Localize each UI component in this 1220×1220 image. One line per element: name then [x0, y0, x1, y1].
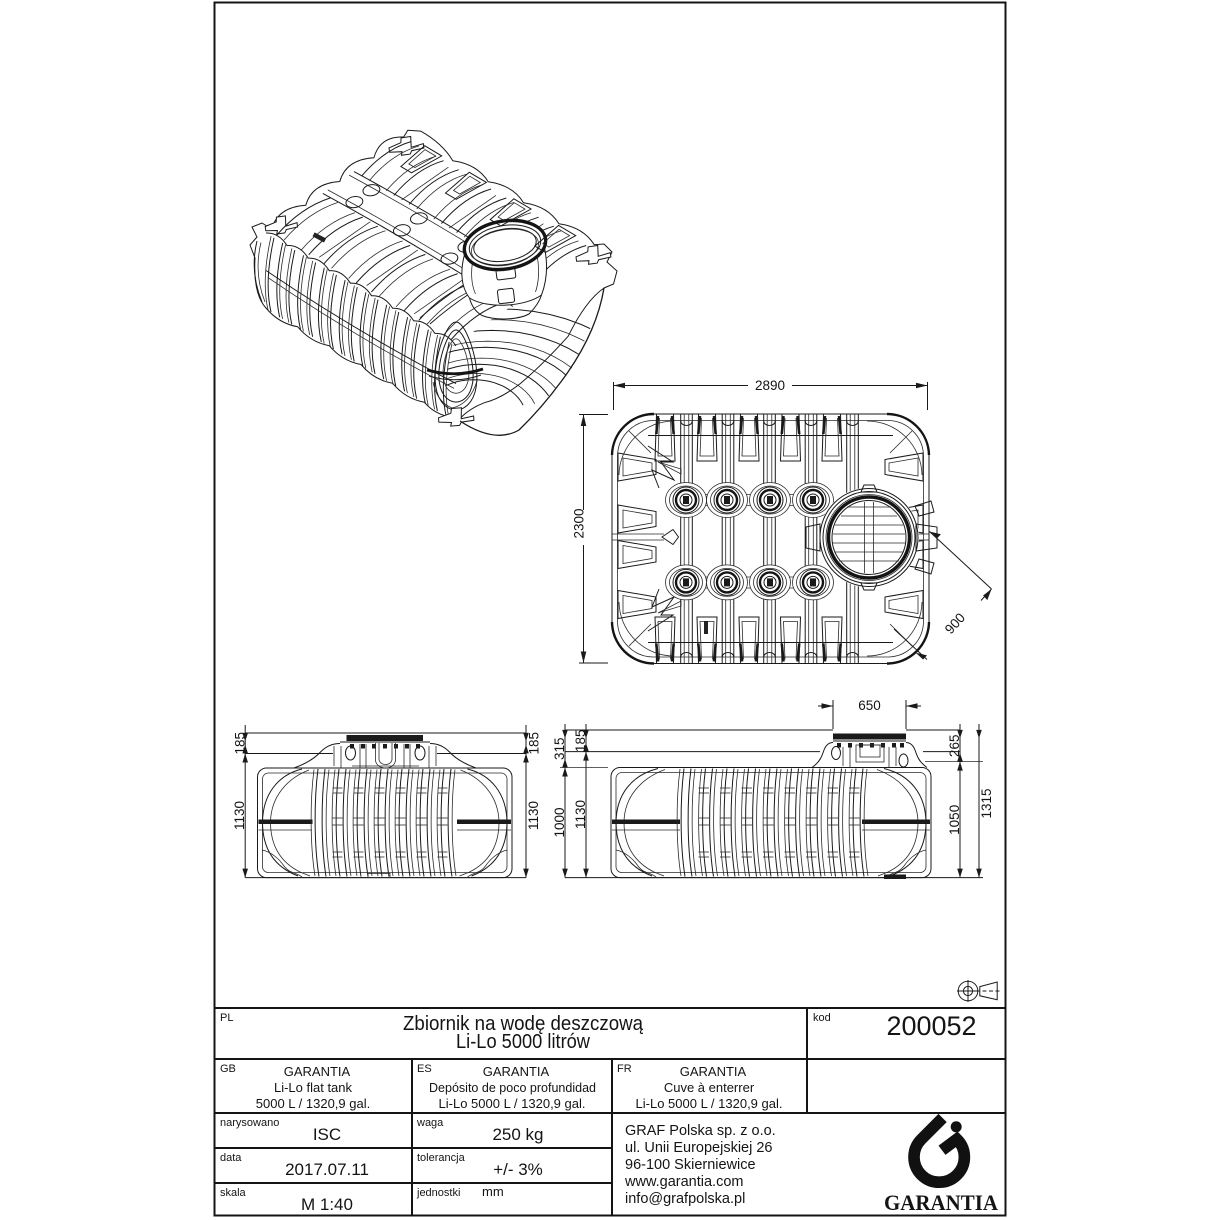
svg-text:185: 185	[526, 732, 541, 755]
svg-text:M 1:40: M 1:40	[301, 1195, 353, 1214]
svg-text:info@grafpolska.pl: info@grafpolska.pl	[625, 1191, 745, 1207]
svg-text:185: 185	[573, 730, 588, 753]
svg-text:Li-Lo 5000 litrów: Li-Lo 5000 litrów	[456, 1030, 590, 1053]
svg-text:GARANTIA: GARANTIA	[284, 1064, 351, 1079]
svg-text:Li-Lo 5000 L / 1320,9 gal.: Li-Lo 5000 L / 1320,9 gal.	[636, 1096, 783, 1111]
svg-text:mm: mm	[482, 1184, 504, 1199]
svg-text:GRAF Polska sp. z o.o.: GRAF Polska sp. z o.o.	[625, 1123, 776, 1139]
svg-text:265: 265	[947, 735, 962, 758]
svg-text:250 kg: 250 kg	[492, 1125, 543, 1144]
svg-text:1130: 1130	[573, 800, 588, 829]
svg-text:data: data	[220, 1152, 242, 1164]
svg-text:waga: waga	[416, 1117, 444, 1129]
svg-text:Li-Lo flat tank: Li-Lo flat tank	[274, 1080, 353, 1095]
svg-text:kod: kod	[813, 1012, 831, 1024]
svg-text:jednostki: jednostki	[416, 1187, 460, 1199]
svg-text:ul. Unii Europejskiej 26: ul. Unii Europejskiej 26	[625, 1140, 773, 1156]
svg-text:5000 L / 1320,9 gal.: 5000 L / 1320,9 gal.	[256, 1096, 370, 1111]
svg-text:tolerancja: tolerancja	[417, 1152, 466, 1164]
svg-text:GARANTIA: GARANTIA	[483, 1064, 550, 1079]
svg-text:1000: 1000	[552, 807, 567, 837]
svg-text:1130: 1130	[232, 801, 247, 830]
svg-text:+/- 3%: +/- 3%	[493, 1160, 543, 1179]
svg-text:GB: GB	[220, 1063, 236, 1075]
svg-text:Li-Lo 5000 L / 1320,9 gal.: Li-Lo 5000 L / 1320,9 gal.	[439, 1096, 586, 1111]
svg-text:96-100 Skierniewice: 96-100 Skierniewice	[625, 1157, 756, 1173]
svg-text:315: 315	[552, 737, 567, 760]
svg-text:1130: 1130	[526, 801, 541, 830]
svg-text:1315: 1315	[979, 788, 994, 818]
svg-text:2300: 2300	[572, 508, 587, 538]
svg-text:1050: 1050	[947, 805, 962, 835]
svg-text:185: 185	[232, 732, 247, 755]
svg-text:GARANTIA: GARANTIA	[680, 1064, 747, 1079]
svg-text:skala: skala	[220, 1187, 247, 1199]
svg-text:2890: 2890	[755, 378, 785, 393]
svg-text:ISC: ISC	[313, 1125, 341, 1144]
svg-text:2017.07.11: 2017.07.11	[285, 1160, 369, 1179]
svg-text:PL: PL	[220, 1012, 233, 1024]
svg-text:GARANTIA: GARANTIA	[884, 1190, 998, 1215]
svg-text:FR: FR	[617, 1063, 632, 1075]
svg-text:650: 650	[858, 698, 881, 713]
svg-text:Cuve à enterrer: Cuve à enterrer	[664, 1080, 755, 1095]
svg-text:Depósito de poco profundidad: Depósito de poco profundidad	[429, 1080, 596, 1095]
svg-text:200052: 200052	[886, 1011, 976, 1041]
svg-text:narysowano: narysowano	[220, 1117, 279, 1129]
svg-text:www.garantia.com: www.garantia.com	[624, 1174, 743, 1190]
svg-text:ES: ES	[417, 1063, 432, 1075]
